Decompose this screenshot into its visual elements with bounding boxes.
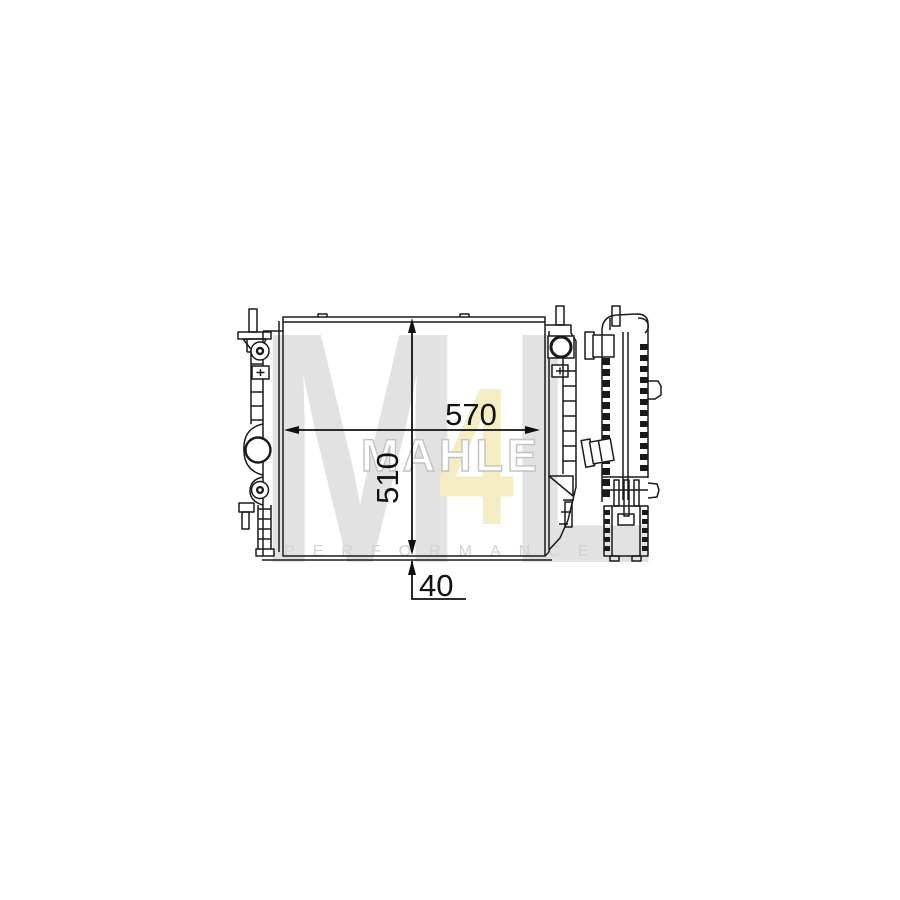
left-bottom-bracket [239,503,254,512]
height-dimension-label: 510 [370,452,405,504]
filler-port-circle [246,438,271,463]
width-dimension-label: 570 [445,397,497,432]
left-bottom-mounting-pin [242,512,249,529]
drain-plug-center [258,488,261,491]
depth-dimension-label: 40 [419,568,453,603]
inlet-port-circle [551,337,571,357]
radiator-technical-drawing-page: M 4 L MAHLE PERFORMANCE [0,0,900,900]
drawing-svg: M 4 L MAHLE PERFORMANCE [0,0,900,900]
left-top-boss-center [258,349,262,353]
upper-hose-body [593,335,614,357]
watermark-tagline: PERFORMANCE [284,543,606,560]
